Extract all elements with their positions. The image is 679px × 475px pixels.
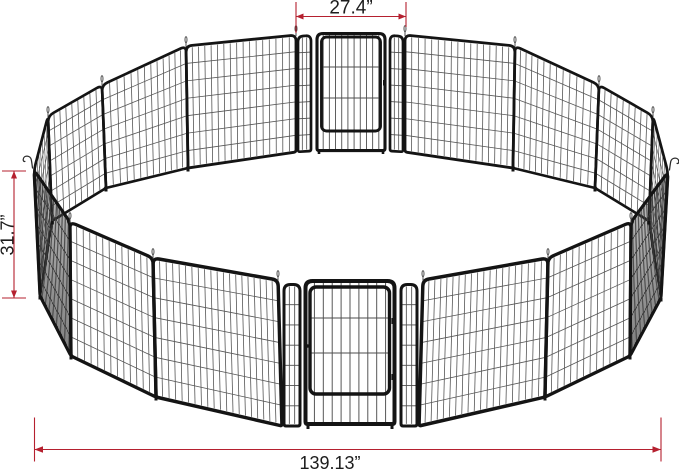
- svg-text:139.13”: 139.13”: [299, 453, 360, 470]
- svg-text:27.4”: 27.4”: [329, 0, 372, 19]
- svg-text:31.7”: 31.7”: [0, 214, 18, 255]
